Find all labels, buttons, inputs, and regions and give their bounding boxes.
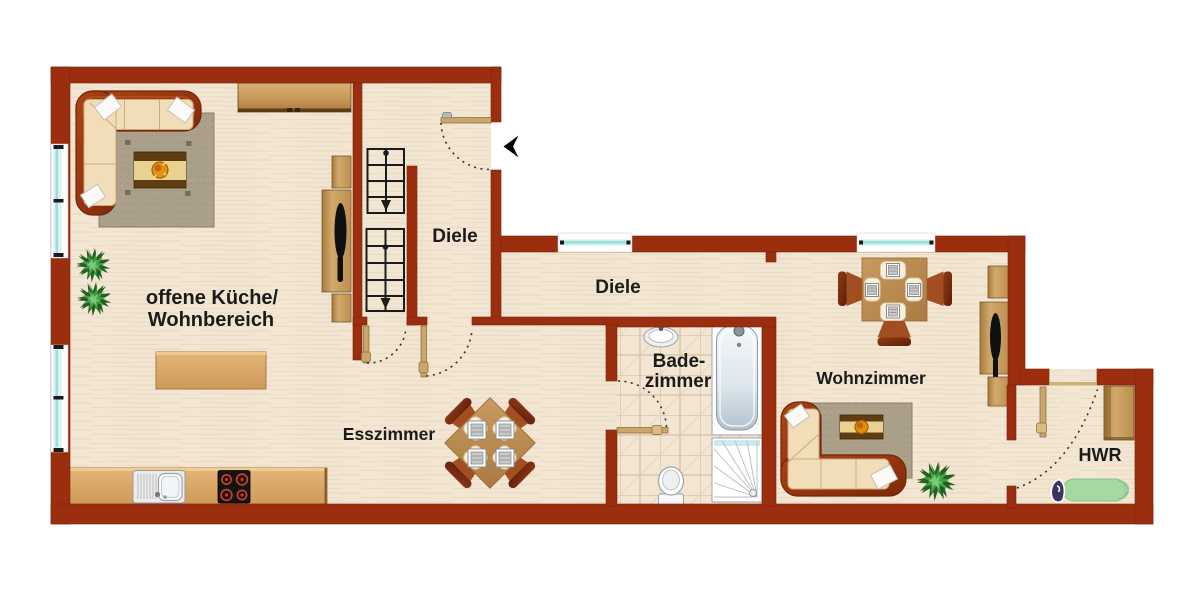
svg-text:HWR: HWR bbox=[1079, 445, 1122, 465]
svg-text:Diele: Diele bbox=[595, 277, 640, 298]
svg-text:Wohnbereich: Wohnbereich bbox=[148, 309, 274, 331]
svg-text:zimmer: zimmer bbox=[645, 371, 712, 392]
svg-text:Diele: Diele bbox=[432, 226, 477, 247]
svg-text:Bade-: Bade- bbox=[653, 351, 706, 372]
svg-text:Wohnzimmer: Wohnzimmer bbox=[816, 368, 926, 388]
svg-text:Esszimmer: Esszimmer bbox=[343, 424, 436, 444]
svg-text:offene Küche/: offene Küche/ bbox=[146, 287, 279, 309]
